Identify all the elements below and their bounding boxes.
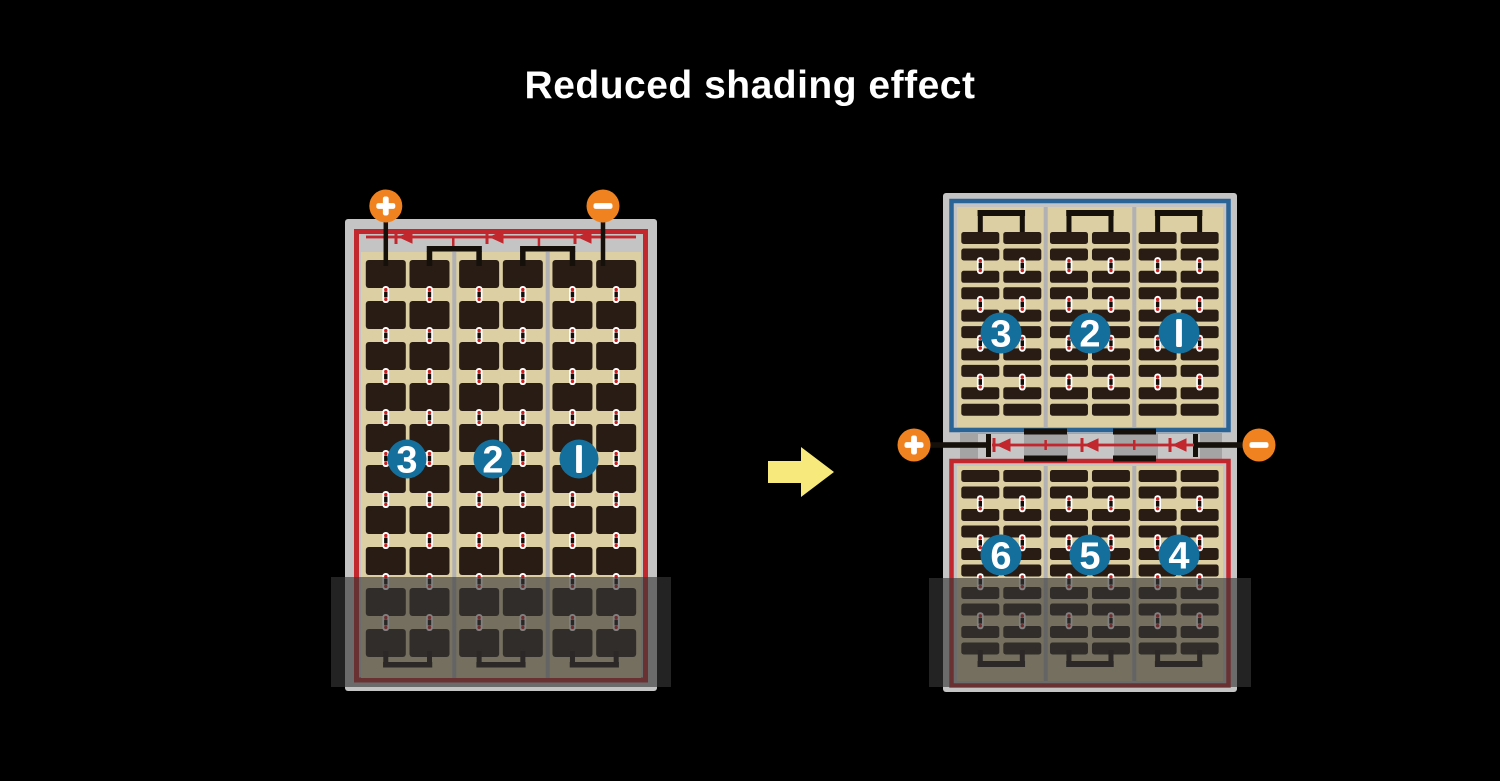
right-top-string-numbers: 32 [981, 313, 1200, 356]
solar-cell [552, 301, 592, 329]
solar-half-cell [1050, 232, 1088, 244]
svg-text:2: 2 [482, 440, 503, 482]
shading-diagram-canvas: 3232654 [0, 0, 1500, 781]
solar-half-cell [1139, 470, 1177, 482]
svg-text:6: 6 [990, 536, 1011, 578]
terminal-wire [1196, 442, 1247, 448]
solar-cell [366, 547, 406, 575]
series-bridge [1113, 429, 1156, 435]
minus-terminal [1243, 429, 1276, 462]
left-terminals [369, 190, 619, 223]
string-number-1 [1159, 313, 1200, 354]
solar-half-cell [1139, 232, 1177, 244]
series-bridge [1024, 456, 1067, 462]
svg-text:3: 3 [396, 440, 417, 482]
solar-cell [503, 342, 543, 370]
terminal-wire [928, 442, 988, 448]
solar-cell [366, 342, 406, 370]
solar-half-cell [961, 232, 999, 244]
solar-cell [410, 547, 450, 575]
plus-terminal [369, 190, 402, 223]
solar-half-cell [1003, 232, 1041, 244]
solar-cell [459, 547, 499, 575]
solar-half-cell [1092, 470, 1130, 482]
solar-cell [459, 342, 499, 370]
svg-text:3: 3 [990, 314, 1011, 356]
solar-half-cell [1003, 470, 1041, 482]
solar-cell [410, 506, 450, 534]
solar-half-cell [1139, 404, 1177, 416]
diagram-stage: Reduced shading effect 3232654 [0, 0, 1500, 781]
series-bridge [1113, 456, 1156, 462]
solar-cell [596, 465, 636, 493]
solar-cell [459, 301, 499, 329]
solar-cell [552, 547, 592, 575]
solar-cell [366, 301, 406, 329]
solar-cell [596, 506, 636, 534]
string-number-1 [560, 440, 599, 479]
solar-cell [410, 301, 450, 329]
solar-cell [552, 383, 592, 411]
solar-cell [552, 506, 592, 534]
solar-cell [596, 301, 636, 329]
solar-cell [596, 547, 636, 575]
minus-terminal [587, 190, 620, 223]
solar-cell [366, 383, 406, 411]
solar-cell [503, 547, 543, 575]
solar-half-cell [1181, 232, 1219, 244]
solar-cell [459, 506, 499, 534]
series-bridge [520, 246, 575, 252]
string-separator [1132, 207, 1136, 427]
solar-cell [366, 506, 406, 534]
solar-cell [459, 383, 499, 411]
transform-arrow-icon [768, 447, 834, 497]
solar-cell [503, 506, 543, 534]
solar-half-cell [1181, 404, 1219, 416]
svg-text:4: 4 [1168, 536, 1189, 578]
plus-terminal [898, 429, 931, 462]
string-separator [1044, 207, 1048, 427]
solar-cell [596, 424, 636, 452]
shading-overlay-right [929, 578, 1251, 687]
solar-cell [596, 383, 636, 411]
shading-overlay-left [331, 577, 671, 687]
solar-half-cell [1092, 232, 1130, 244]
solar-cell [410, 383, 450, 411]
solar-half-cell [1092, 404, 1130, 416]
solar-half-cell [1050, 470, 1088, 482]
terminal-stem [601, 220, 606, 266]
series-bridge [1024, 429, 1067, 435]
right-bottom-string-numbers: 654 [981, 535, 1200, 578]
solar-half-cell [961, 404, 999, 416]
solar-cell [503, 301, 543, 329]
solar-half-cell [1003, 404, 1041, 416]
series-bridge [1066, 210, 1114, 216]
svg-text:2: 2 [1079, 314, 1100, 356]
solar-cell [410, 342, 450, 370]
svg-text:5: 5 [1079, 536, 1100, 578]
series-bridge [427, 246, 482, 252]
solar-half-cell [1050, 404, 1088, 416]
terminal-stem [384, 220, 389, 266]
solar-half-cell [961, 470, 999, 482]
solar-cell [503, 383, 543, 411]
solar-cell [596, 342, 636, 370]
solar-half-cell [1181, 470, 1219, 482]
solar-cell [552, 342, 592, 370]
series-bridge [1155, 210, 1203, 216]
series-bridge [978, 210, 1026, 216]
